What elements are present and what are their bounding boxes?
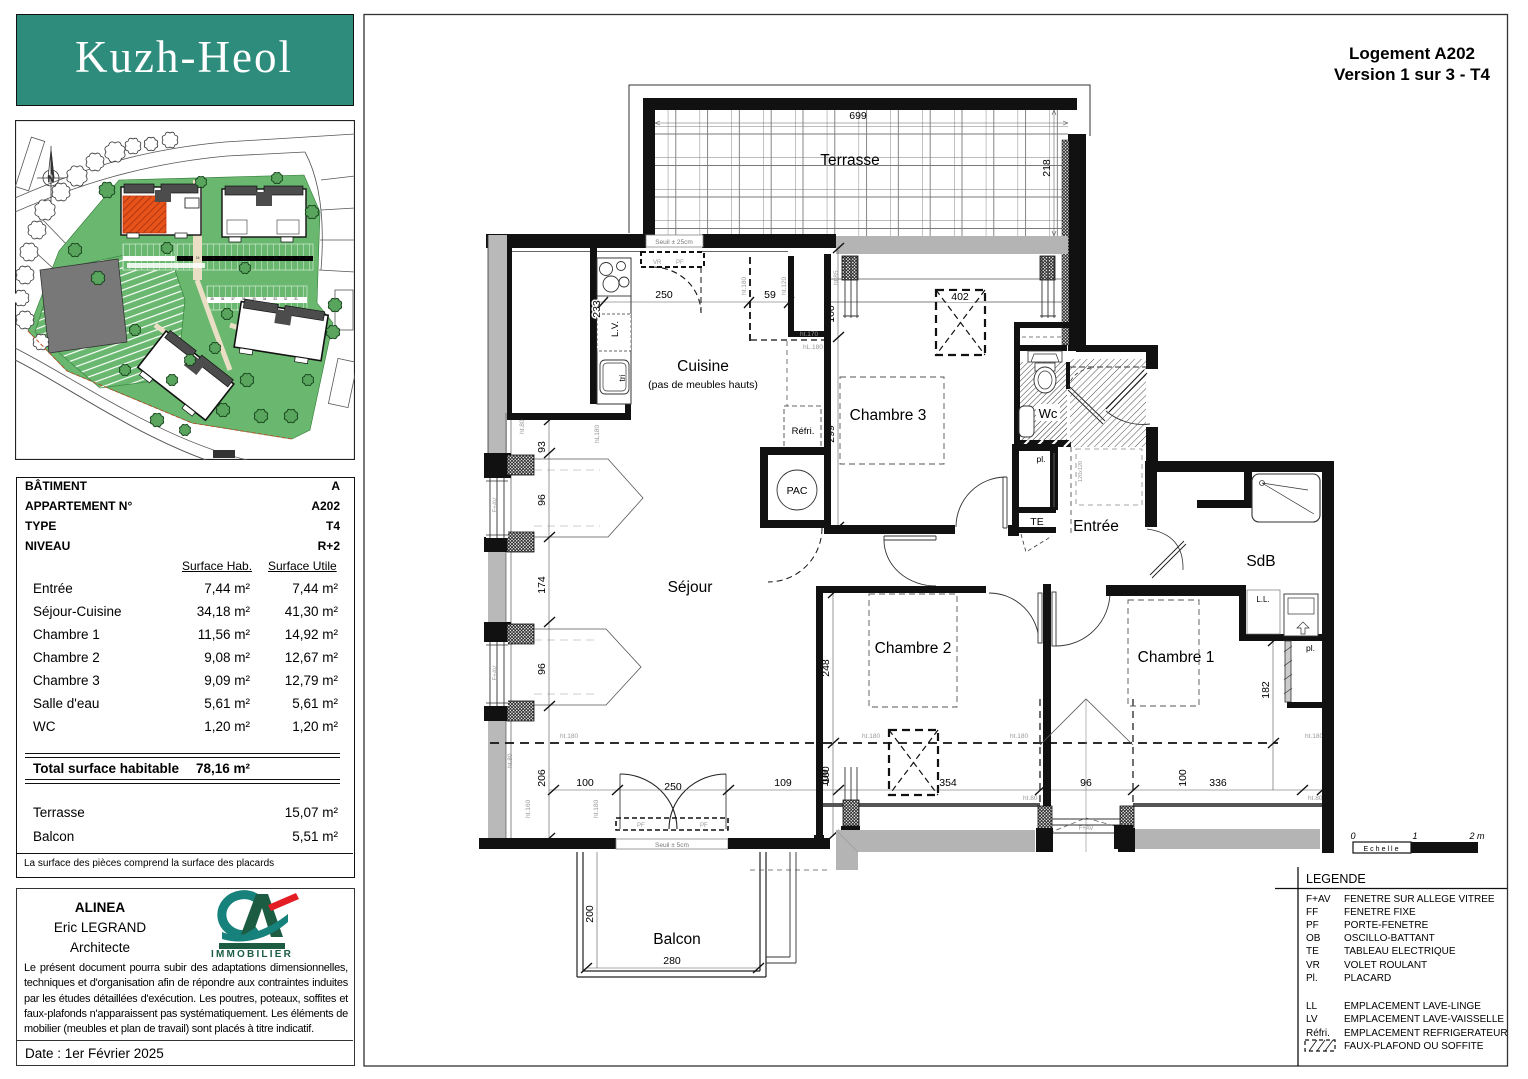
svg-text:ht.160: ht.160 (525, 800, 532, 818)
svg-text:ht.120: ht.120 (781, 277, 788, 295)
svg-text:250: 250 (655, 289, 673, 301)
svg-text:0: 0 (1350, 831, 1355, 841)
svg-text:96: 96 (536, 494, 548, 506)
svg-text:Chambre 3: Chambre 3 (850, 407, 927, 424)
svg-text:VOLET ROULANT: VOLET ROULANT (1344, 960, 1427, 971)
svg-text:EMPLACEMENT REFRIGERATEUR: EMPLACEMENT REFRIGERATEUR (1344, 1028, 1508, 1039)
svg-text:PF: PF (637, 823, 645, 829)
svg-text:Pl.: Pl. (1306, 973, 1318, 984)
svg-text:FAUX-PLAFOND OU SOFFITE: FAUX-PLAFOND OU SOFFITE (1344, 1041, 1484, 1052)
svg-text:PF: PF (676, 260, 684, 266)
svg-text:Terrasse: Terrasse (820, 152, 879, 169)
svg-text:100: 100 (576, 777, 594, 789)
svg-text:F+AV: F+AV (493, 498, 499, 513)
svg-text:Chambre 2: Chambre 2 (875, 640, 952, 657)
svg-text:PORTE-FENETRE: PORTE-FENETRE (1344, 920, 1429, 931)
svg-text:Echelle: Echelle (1364, 846, 1401, 853)
svg-text:hL180: hL180 (594, 425, 601, 443)
svg-text:Version 1 sur 3 - T4: Version 1 sur 3 - T4 (1334, 65, 1490, 84)
svg-text:206: 206 (536, 769, 548, 787)
svg-text:Balcon: Balcon (653, 931, 700, 948)
svg-text:182: 182 (1260, 681, 1272, 699)
svg-text:L.L.: L.L. (1256, 595, 1269, 604)
svg-text:248: 248 (820, 659, 832, 677)
svg-text:218: 218 (1041, 159, 1053, 177)
svg-text:PAC: PAC (787, 485, 808, 497)
svg-text:Seuil ± 5cm: Seuil ± 5cm (655, 842, 689, 849)
svg-text:96: 96 (536, 663, 548, 675)
svg-text:ht.80: ht.80 (1308, 795, 1323, 802)
svg-text:pl.: pl. (1306, 643, 1315, 653)
svg-text:250: 250 (664, 781, 682, 793)
svg-text:Seuil ± 25cm: Seuil ± 25cm (655, 239, 693, 246)
svg-text:SdB: SdB (1246, 553, 1275, 570)
svg-text:TE: TE (1306, 946, 1319, 957)
svg-text:FENETRE FIXE: FENETRE FIXE (1344, 907, 1416, 918)
svg-text:174: 174 (536, 576, 548, 594)
svg-text:233: 233 (591, 300, 603, 318)
svg-text:93: 93 (536, 441, 548, 453)
svg-text:200: 200 (584, 905, 596, 923)
svg-text:LL: LL (1306, 1001, 1318, 1012)
svg-text:Réfri.: Réfri. (1306, 1028, 1330, 1039)
svg-text:LV: LV (1306, 1014, 1318, 1025)
svg-text:ht.80: ht.80 (507, 753, 514, 768)
svg-text:354: 354 (939, 777, 957, 789)
svg-text:100: 100 (1177, 769, 1189, 787)
svg-text:59: 59 (764, 289, 776, 301)
svg-text:Cuisine: Cuisine (677, 358, 729, 375)
svg-text:PF: PF (1306, 920, 1319, 931)
svg-text:Réfri.: Réfri. (792, 426, 815, 437)
svg-text:TABLEAU ELECTRIQUE: TABLEAU ELECTRIQUE (1344, 946, 1456, 957)
svg-text:ht.180: ht.180 (593, 800, 600, 818)
svg-text:402: 402 (951, 291, 969, 303)
svg-text:F+AV: F+AV (1306, 894, 1331, 905)
svg-text:FENETRE SUR ALLEGE VITREE: FENETRE SUR ALLEGE VITREE (1344, 894, 1495, 905)
svg-text:PLACARD: PLACARD (1344, 973, 1391, 984)
svg-text:(pas de meubles hauts): (pas de meubles hauts) (648, 379, 758, 391)
svg-text:VR: VR (1306, 960, 1320, 971)
svg-text:ht.180: ht.180 (1010, 733, 1028, 740)
svg-text:Logement A202: Logement A202 (1349, 44, 1475, 63)
svg-text:VR: VR (653, 260, 662, 266)
svg-text:EMPLACEMENT LAVE-LINGE: EMPLACEMENT LAVE-LINGE (1344, 1001, 1481, 1012)
svg-text:280: 280 (663, 955, 681, 967)
svg-text:hL.180: hL.180 (803, 344, 823, 351)
svg-text:ht.180: ht.180 (862, 733, 880, 740)
svg-text:Entrée: Entrée (1073, 518, 1119, 535)
svg-text:PF: PF (700, 823, 708, 829)
svg-text:TE: TE (1030, 516, 1043, 528)
svg-text:L.V.: L.V. (610, 321, 621, 337)
svg-text:tri: tri (617, 374, 627, 381)
svg-text:ht.180: ht.180 (560, 733, 578, 740)
svg-text:F+AV: F+AV (1079, 826, 1094, 832)
svg-text:OB: OB (1306, 933, 1321, 944)
svg-text:pl.: pl. (1037, 454, 1046, 464)
svg-text:ht.80: ht.80 (1023, 795, 1038, 802)
svg-text:ht.180: ht.180 (1305, 733, 1323, 740)
svg-text:ht.85: ht.85 (833, 270, 840, 285)
svg-text:336: 336 (1209, 777, 1227, 789)
svg-text:Chambre 1: Chambre 1 (1138, 649, 1215, 666)
svg-text:2 m: 2 m (1468, 831, 1485, 841)
svg-text:699: 699 (849, 110, 867, 122)
svg-text:Wc: Wc (1039, 406, 1058, 421)
svg-text:LEGENDE: LEGENDE (1306, 872, 1366, 886)
svg-text:Séjour: Séjour (668, 579, 713, 596)
svg-text:ht.80: ht.80 (519, 419, 526, 434)
svg-text:FF: FF (1306, 907, 1318, 918)
svg-text:F+AV: F+AV (493, 666, 499, 681)
svg-text:EMPLACEMENT LAVE-VAISSELLE: EMPLACEMENT LAVE-VAISSELLE (1344, 1014, 1504, 1025)
svg-text:100: 100 (820, 766, 832, 784)
svg-text:120x120: 120x120 (1078, 461, 1084, 482)
svg-text:1: 1 (1412, 831, 1417, 841)
svg-text:ht.170: ht.170 (800, 331, 818, 338)
svg-text:ht.180: ht.180 (741, 277, 748, 295)
svg-text:OSCILLO-BATTANT: OSCILLO-BATTANT (1344, 933, 1435, 944)
svg-text:109: 109 (774, 777, 792, 789)
